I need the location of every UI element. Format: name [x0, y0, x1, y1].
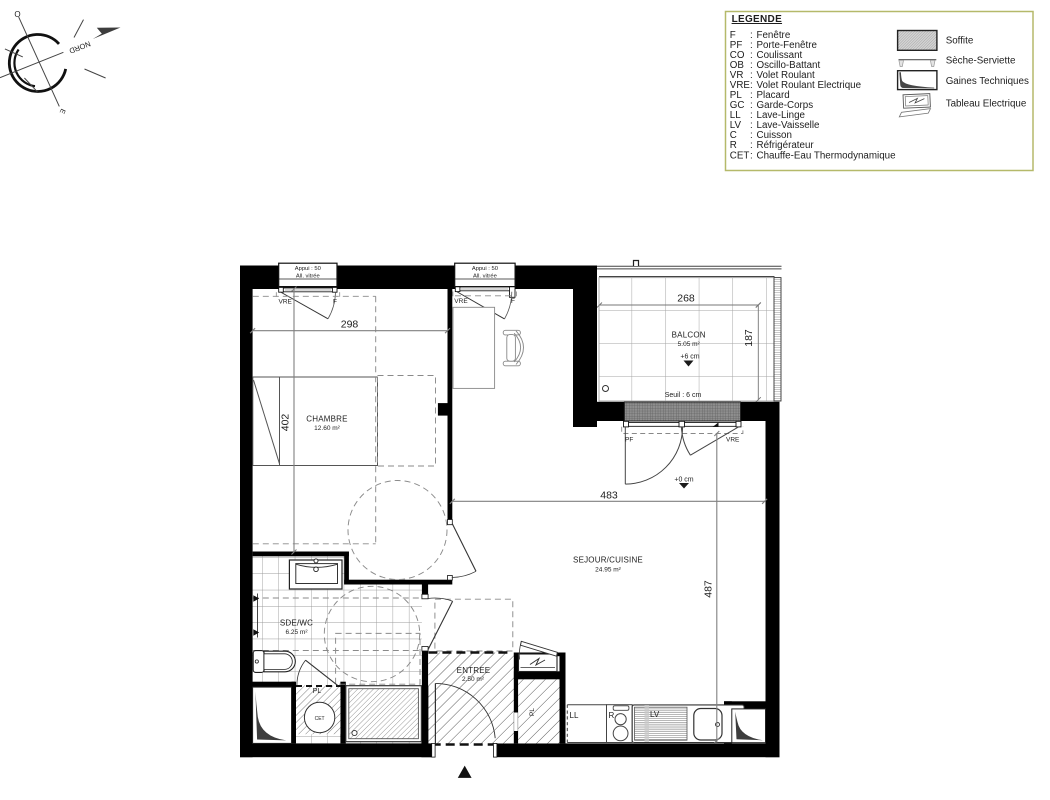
svg-text:Seuil : 6 cm: Seuil : 6 cm — [665, 392, 702, 399]
svg-text:6.25 m²: 6.25 m² — [285, 629, 308, 636]
svg-text:2.50 m²: 2.50 m² — [462, 676, 485, 683]
svg-text:ENTREE: ENTREE — [457, 666, 491, 675]
svg-text:PF: PF — [625, 437, 633, 444]
svg-text:LV: LV — [650, 710, 660, 719]
svg-text:PL: PL — [313, 688, 322, 695]
svg-text:+6 cm: +6 cm — [680, 354, 699, 361]
svg-text:VRE: VRE — [726, 437, 740, 444]
svg-text:Appui : 50: Appui : 50 — [472, 266, 498, 272]
svg-text:Soffite: Soffite — [946, 36, 974, 47]
svg-text:Tableau Electrique: Tableau Electrique — [946, 98, 1027, 109]
svg-text:CET: CET — [315, 716, 325, 722]
svg-text:F: F — [333, 299, 337, 306]
svg-text:F: F — [511, 298, 515, 305]
svg-text:5.05 m²: 5.05 m² — [678, 341, 701, 348]
svg-text:SDE/WC: SDE/WC — [280, 619, 313, 628]
svg-text:O: O — [14, 10, 20, 19]
svg-text:PL: PL — [529, 708, 536, 716]
svg-text:CHAMBRE: CHAMBRE — [306, 415, 347, 424]
svg-text:+0 cm: +0 cm — [674, 477, 693, 484]
svg-text:LL: LL — [570, 711, 579, 720]
svg-text:12.60 m²: 12.60 m² — [314, 425, 340, 432]
svg-text:Appui : 50: Appui : 50 — [295, 266, 321, 272]
svg-text:Sèche-Serviette: Sèche-Serviette — [946, 56, 1016, 67]
svg-text:VRE: VRE — [454, 298, 468, 305]
svg-text:187: 187 — [743, 329, 755, 347]
svg-text:R: R — [609, 711, 615, 720]
svg-text:VRE: VRE — [279, 299, 293, 306]
svg-text:268: 268 — [677, 293, 695, 305]
svg-text:298: 298 — [341, 319, 359, 331]
svg-text:483: 483 — [600, 489, 618, 501]
svg-text:402: 402 — [280, 414, 292, 432]
svg-text:Gaines Techniques: Gaines Techniques — [946, 76, 1029, 87]
svg-text:LEGENDE: LEGENDE — [732, 14, 782, 25]
svg-text:BALCON: BALCON — [672, 331, 706, 340]
svg-text:24.95 m²: 24.95 m² — [595, 567, 621, 574]
svg-text:SEJOUR/CUISINE: SEJOUR/CUISINE — [573, 556, 643, 565]
svg-text:487: 487 — [703, 580, 715, 598]
